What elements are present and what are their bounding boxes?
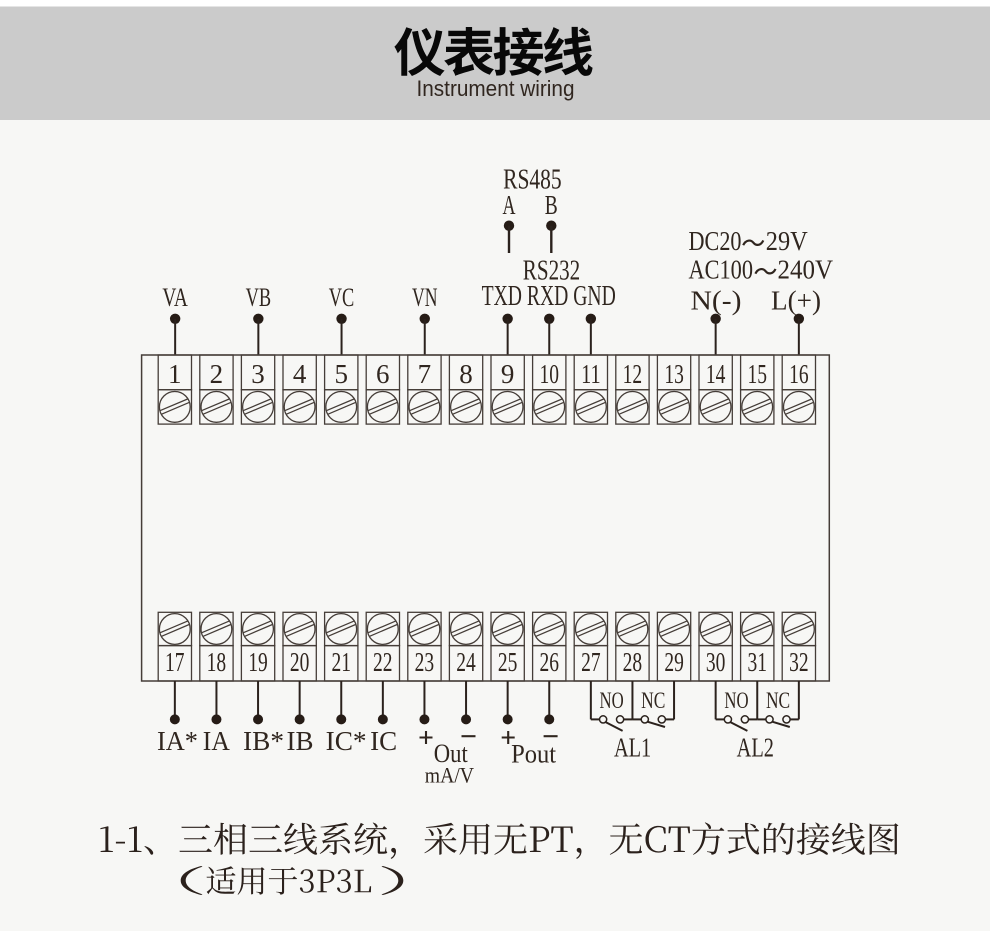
svg-text:23: 23 [415,647,435,677]
svg-text:L(+): L(+) [771,285,821,315]
svg-text:32: 32 [789,647,809,677]
svg-text:1: 1 [168,359,182,389]
svg-text:16: 16 [789,359,809,389]
svg-text:IC*: IC* [326,726,367,756]
svg-text:17: 17 [165,647,185,677]
svg-text:24: 24 [456,647,476,677]
svg-text:NC: NC [766,688,790,713]
svg-text:NC: NC [641,688,665,713]
svg-text:AL1: AL1 [614,732,651,762]
svg-text:18: 18 [207,647,227,677]
svg-text:NO: NO [600,688,624,713]
svg-text:12: 12 [623,359,643,389]
svg-text:VA: VA [162,283,188,312]
svg-text:8: 8 [459,359,473,389]
svg-text:IB: IB [287,726,314,756]
svg-text:Pout: Pout [511,740,557,769]
svg-text:VC: VC [329,283,355,312]
svg-text:28: 28 [623,647,643,677]
svg-text:13: 13 [664,359,684,389]
svg-text:2: 2 [210,359,224,389]
svg-text:20: 20 [290,647,310,677]
svg-text:29V: 29V [766,226,808,256]
svg-text:VN: VN [412,283,438,312]
svg-text:IA*: IA* [157,726,198,756]
svg-text:7: 7 [418,359,432,389]
svg-text:mA/V: mA/V [425,763,474,788]
svg-text:TXD RXD GND: TXD RXD GND [482,281,616,312]
svg-text:22: 22 [373,647,393,677]
svg-text:B: B [545,190,558,220]
svg-text:IA: IA [203,726,230,756]
svg-text:9: 9 [501,359,515,389]
svg-text:5: 5 [334,359,348,389]
svg-text:19: 19 [248,647,268,677]
svg-text:14: 14 [706,359,726,389]
svg-text:240V: 240V [778,255,834,285]
svg-text:15: 15 [747,359,767,389]
svg-text:IC: IC [370,726,397,756]
svg-text:31: 31 [747,647,767,677]
svg-text:26: 26 [539,647,559,677]
svg-text:AC100: AC100 [689,255,754,285]
svg-text:3: 3 [251,359,265,389]
svg-text:30: 30 [706,647,726,677]
svg-text:11: 11 [581,359,601,389]
svg-text:6: 6 [376,359,390,389]
svg-text:29: 29 [664,647,684,677]
svg-text:A: A [503,190,516,220]
svg-text:N(-): N(-) [691,285,742,315]
svg-text:21: 21 [331,647,351,677]
svg-text:IB*: IB* [243,726,284,756]
svg-text:NO: NO [724,688,748,713]
svg-text:VB: VB [246,283,272,312]
svg-text:25: 25 [498,647,518,677]
svg-text:DC20: DC20 [689,226,742,256]
svg-text:AL2: AL2 [737,732,774,762]
svg-text:Instrument wiring: Instrument wiring [417,76,575,101]
svg-text:4: 4 [293,359,307,389]
svg-text:27: 27 [581,647,601,677]
svg-text:10: 10 [539,359,559,389]
